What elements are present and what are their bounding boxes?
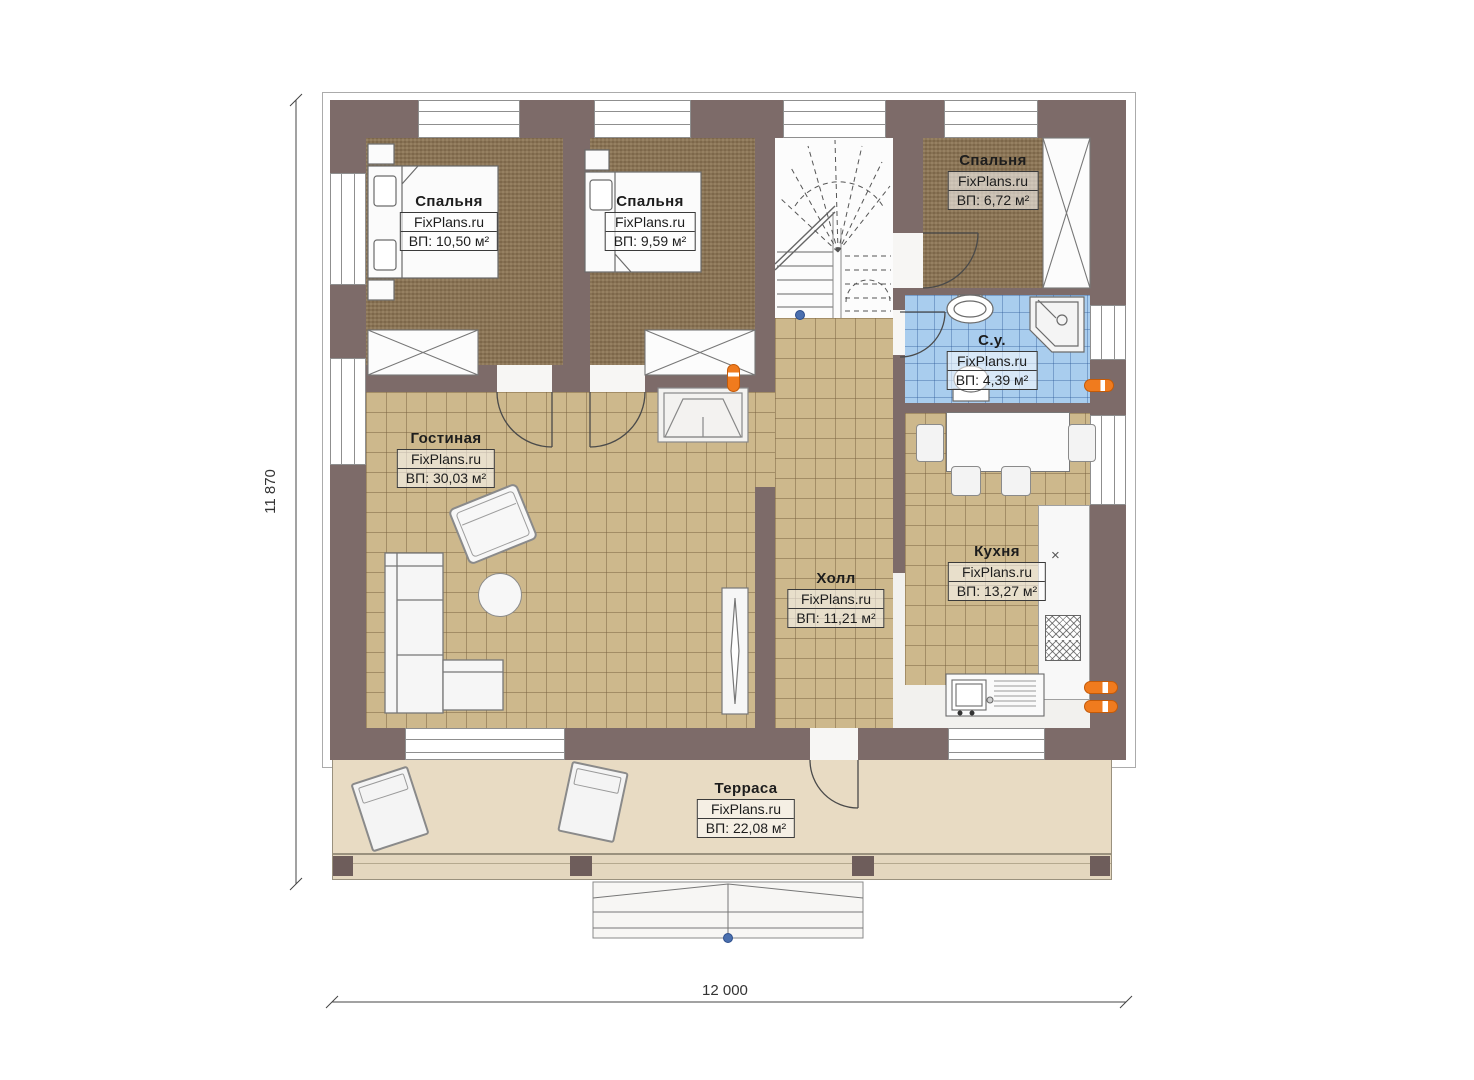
dining-chair: [951, 466, 981, 496]
wall-central-lower: [755, 487, 775, 728]
room-name: Спальня: [948, 152, 1039, 169]
room-label-terrace: Терраса FixPlans.ru ВП: 22,08 м²: [697, 780, 795, 838]
dimension-height: 11 870: [262, 469, 279, 514]
door-opening-bedroom-2: [590, 365, 645, 392]
wall-bedrooms-living: [366, 365, 755, 392]
room-area: ВП: 4,39 м²: [948, 370, 1037, 389]
room-hall-floor: [775, 318, 893, 728]
room-area: ВП: 30,03 м²: [398, 468, 494, 487]
wall-hall-bathroom: [893, 355, 905, 403]
stairwell-floor: [775, 138, 893, 318]
watermark-fixplans: FixPlans.ru: [948, 352, 1037, 370]
room-label-living: Гостиная FixPlans.ru ВП: 30,03 м²: [397, 430, 495, 488]
watermark-fixplans: FixPlans.ru: [788, 590, 883, 608]
radiator: [1084, 379, 1114, 392]
room-area: ВП: 22,08 м²: [698, 818, 794, 837]
window: [418, 100, 520, 138]
wall-bedroom1-bedroom2: [563, 138, 590, 365]
floor-plan: ×: [0, 0, 1474, 1080]
radiator: [1084, 681, 1118, 694]
dining-chair: [1068, 424, 1096, 462]
window: [330, 358, 366, 465]
room-area: ВП: 9,59 м²: [606, 231, 695, 250]
watermark-fixplans: FixPlans.ru: [949, 563, 1045, 581]
watermark-fixplans: FixPlans.ru: [606, 213, 695, 231]
wall-hall-kitchen: [893, 413, 905, 573]
stove: [1045, 615, 1081, 661]
door-opening-bedroom-1: [497, 365, 552, 392]
coffee-table: [478, 573, 522, 617]
terrace-post: [570, 856, 592, 876]
room-area: ВП: 11,21 м²: [788, 608, 883, 627]
window: [1090, 305, 1126, 360]
room-name: Кухня: [948, 543, 1046, 560]
door-opening-bathroom: [893, 310, 905, 355]
room-label-bedroom-2: Спальня FixPlans.ru ВП: 9,59 м²: [605, 193, 696, 251]
room-bedroom-2-floor: [590, 138, 755, 365]
room-name: С.у.: [947, 332, 1038, 349]
window: [594, 100, 691, 138]
room-name: Терраса: [697, 780, 795, 797]
room-label-hall: Холл FixPlans.ru ВП: 11,21 м²: [787, 570, 884, 628]
wall-bedroom3-bathroom: [893, 288, 1090, 295]
vent-symbol: ×: [1051, 548, 1060, 563]
watermark-fixplans: FixPlans.ru: [398, 450, 494, 468]
window: [783, 100, 886, 138]
dining-chair: [916, 424, 944, 462]
room-name: Спальня: [605, 193, 696, 210]
terrace-edge: [332, 854, 1112, 880]
room-area: ВП: 6,72 м²: [949, 190, 1038, 209]
window: [944, 100, 1038, 138]
room-label-bedroom-1: Спальня FixPlans.ru ВП: 10,50 м²: [400, 193, 498, 251]
door-opening-bedroom-3: [893, 233, 923, 288]
room-area: ВП: 10,50 м²: [401, 231, 497, 250]
dimension-width: 12 000: [702, 982, 748, 999]
living-hall-passage: [755, 392, 775, 487]
watermark-fixplans: FixPlans.ru: [698, 800, 794, 818]
room-label-bedroom-3: Спальня FixPlans.ru ВП: 6,72 м²: [948, 152, 1039, 210]
window: [330, 173, 366, 285]
room-name: Холл: [787, 570, 884, 587]
entrance-door-opening: [810, 728, 858, 760]
room-name: Гостиная: [397, 430, 495, 447]
radiator: [727, 364, 740, 392]
entry-steps: [593, 882, 863, 943]
terrace-post: [1090, 856, 1110, 876]
window: [405, 728, 565, 760]
dining-table: [946, 412, 1070, 472]
room-label-bathroom: С.у. FixPlans.ru ВП: 4,39 м²: [947, 332, 1038, 390]
kitchen-counter: [1038, 505, 1090, 700]
wall-hall-bathroom: [893, 295, 905, 310]
room-name: Спальня: [400, 193, 498, 210]
terrace-post: [852, 856, 874, 876]
wall-central-upper: [755, 138, 775, 392]
dining-chair: [1001, 466, 1031, 496]
window: [948, 728, 1045, 760]
room-bedroom-1-floor: [366, 138, 563, 365]
radiator: [1084, 700, 1118, 713]
terrace-post: [333, 856, 353, 876]
room-area: ВП: 13,27 м²: [949, 581, 1045, 600]
watermark-fixplans: FixPlans.ru: [949, 172, 1038, 190]
watermark-fixplans: FixPlans.ru: [401, 213, 497, 231]
hall-kitchen-passage: [893, 573, 905, 728]
room-label-kitchen: Кухня FixPlans.ru ВП: 13,27 м²: [948, 543, 1046, 601]
